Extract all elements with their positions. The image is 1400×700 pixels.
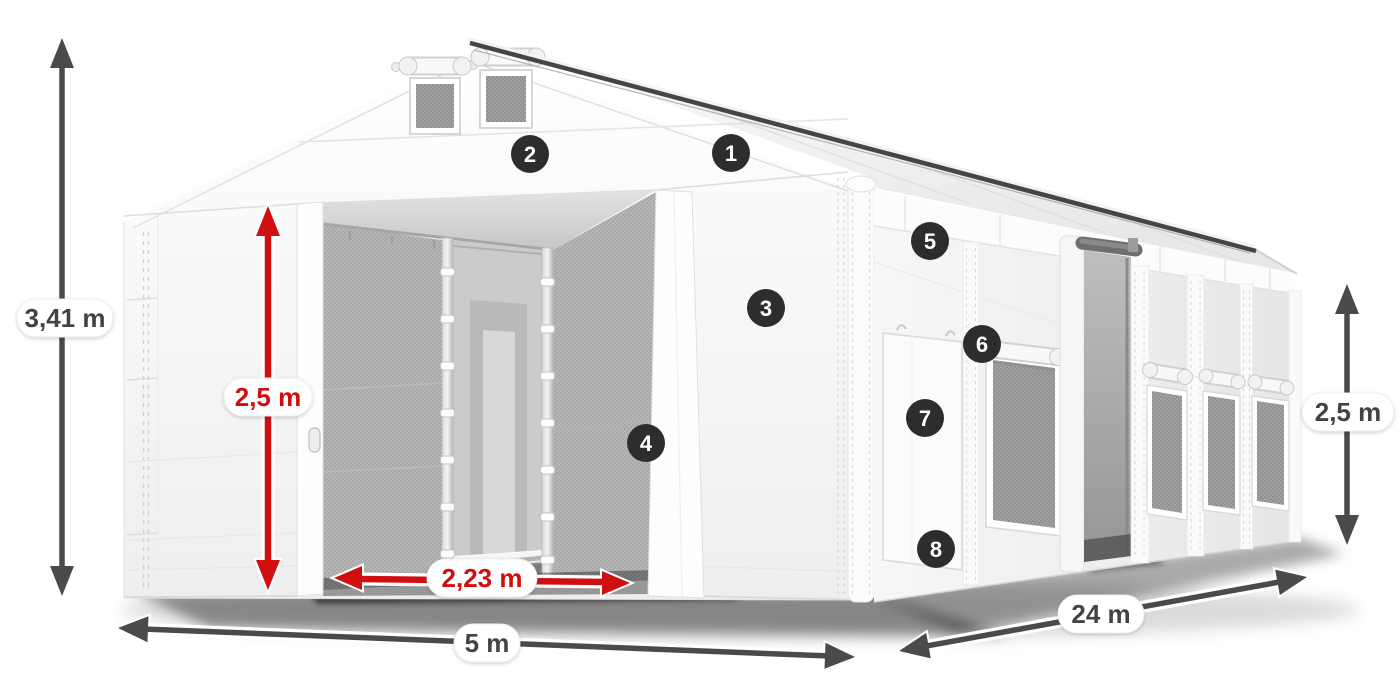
- callout-badge-2: 2: [511, 135, 549, 173]
- callout-badge-1: 1: [712, 134, 750, 172]
- callout-number-4: 4: [640, 431, 653, 456]
- side-height-value: 2,5 m: [1315, 397, 1382, 427]
- length-value: 24 m: [1071, 599, 1130, 629]
- diagram-canvas: 3,41 m 2,5 m 2,23 m: [0, 0, 1400, 700]
- side-door: [883, 325, 962, 570]
- callout-number-7: 7: [919, 406, 931, 431]
- interior-right-panel: [553, 192, 656, 584]
- callout-badge-8: 8: [917, 530, 955, 568]
- interior-left-panel: [323, 224, 442, 590]
- tent-corner-band: [846, 176, 876, 602]
- dimension-label-total-height: 3,41 m: [17, 299, 113, 337]
- callout-number-1: 1: [725, 141, 737, 166]
- callout-badge-5: 5: [911, 222, 949, 260]
- callout-number-6: 6: [976, 332, 988, 357]
- side-strap: [963, 242, 979, 585]
- dimension-label-length: 24 m: [1058, 595, 1144, 633]
- inner-height-value: 2,5 m: [235, 382, 302, 412]
- callout-number-2: 2: [524, 142, 536, 167]
- side-open-doorway: [1060, 236, 1138, 572]
- dimension-label-entrance-width: 2,23 m: [427, 559, 537, 597]
- tent-interior: [306, 190, 656, 598]
- callout-badge-7: 7: [906, 399, 944, 437]
- callout-badge-4: 4: [627, 424, 665, 462]
- entrance-door-handle: [309, 428, 320, 452]
- dimension-total-height: 3,41 m: [17, 38, 113, 596]
- total-height-value: 3,41 m: [25, 303, 106, 333]
- dimension-label-inner-height: 2,5 m: [224, 378, 312, 416]
- width-value: 5 m: [465, 628, 510, 658]
- callout-badge-6: 6: [963, 325, 1001, 363]
- callout-number-8: 8: [930, 537, 942, 562]
- callout-badge-3: 3: [747, 289, 785, 327]
- tent-illustration: [124, 39, 1301, 602]
- dimension-side-height: 2,5 m: [1302, 284, 1394, 545]
- side-window-1: [980, 340, 1067, 537]
- entrance-width-value: 2,23 m: [442, 563, 523, 593]
- dimension-label-side-height: 2,5 m: [1302, 393, 1394, 431]
- callout-number-5: 5: [924, 229, 936, 254]
- dimension-label-width: 5 m: [454, 624, 520, 662]
- tent-dimension-diagram: 3,41 m 2,5 m 2,23 m: [0, 0, 1400, 700]
- callout-number-3: 3: [760, 296, 772, 321]
